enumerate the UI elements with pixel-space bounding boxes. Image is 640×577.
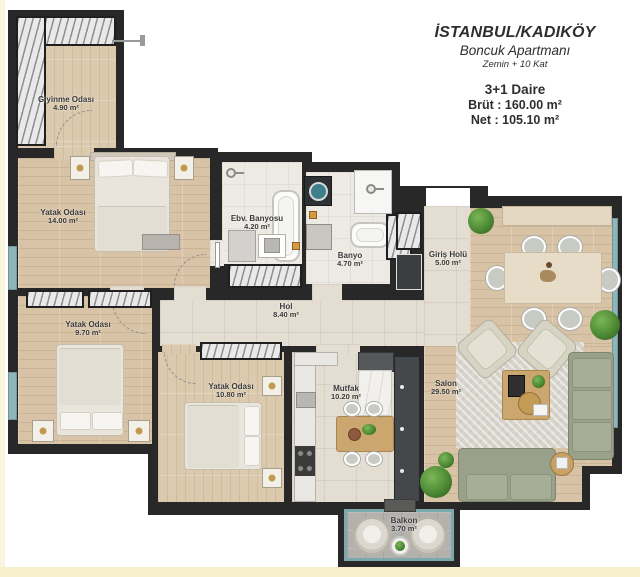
unit-type: 3+1 Daire (404, 82, 626, 97)
sofa-cushion (466, 474, 508, 500)
plant-icon (438, 452, 454, 468)
chair (366, 452, 382, 466)
plant-icon (468, 208, 494, 234)
cabinet-handle-icon (400, 427, 404, 431)
room-area: 10.20 m² (331, 393, 361, 402)
blanket (187, 405, 239, 468)
table-plant-icon (532, 375, 545, 388)
sofa-cushion (510, 474, 552, 500)
title-block: İSTANBUL/KADIKÖY Boncuk Apartmanı Zemin … (404, 24, 626, 127)
door-opening-bath (312, 284, 342, 302)
fridge (358, 352, 394, 372)
entry-cabinet (396, 254, 422, 290)
floor-entry-hall (424, 206, 470, 346)
towel-warmer-icon (309, 211, 317, 219)
dresser (142, 234, 180, 250)
window-master (8, 246, 17, 290)
armchair-cushion (524, 326, 569, 371)
room-area: 9.70 m² (65, 329, 110, 338)
room-area: 5.00 m² (429, 259, 467, 268)
lamp-icon (40, 428, 47, 435)
wardrobe (16, 16, 46, 146)
nightstand (32, 420, 54, 442)
sofa-cushion (572, 422, 612, 452)
book (533, 404, 548, 416)
nightstand (70, 156, 90, 180)
round-chair (352, 516, 392, 556)
sideboard (502, 206, 612, 226)
stove (295, 446, 315, 476)
bathtub-basin (356, 228, 384, 242)
cabinet-handle-icon (400, 385, 404, 389)
armchair-cushion (464, 326, 509, 371)
window-bedroom2 (8, 372, 17, 420)
kitchen-counter (294, 352, 338, 366)
room-area: 14.00 m² (40, 217, 85, 226)
lamp-icon (269, 383, 276, 390)
building-floors: Zemin + 10 Kat (404, 59, 626, 70)
wall-anchor-icon (112, 40, 142, 42)
shower-arm-icon (235, 172, 244, 174)
wall-anchor-icon (140, 35, 145, 46)
pillow (133, 159, 169, 178)
entry-door-opening (426, 188, 470, 208)
project-location: İSTANBUL/KADIKÖY (404, 24, 626, 42)
door-leaf-ensuite (215, 242, 220, 268)
towel-warmer-icon (292, 242, 300, 250)
pillow (92, 412, 123, 430)
blanket (59, 348, 121, 405)
room-label-salon: Salon 29.50 m² (431, 379, 461, 397)
room-area: 4.90 m² (38, 104, 94, 113)
plant-icon (420, 466, 452, 498)
tall-cabinets (394, 356, 420, 502)
page-edge-bottom (0, 567, 640, 577)
side-table-decor (556, 457, 568, 469)
room-label-yatak-2: Yatak Odası 9.70 m² (65, 320, 110, 338)
floor-plan-page: Giyinme Odası 4.90 m² Yatak Odası 14.00 … (0, 0, 640, 577)
plant-icon (590, 310, 620, 340)
nightstand (262, 468, 282, 488)
washer-door-icon (309, 182, 328, 201)
shower-arm-icon (375, 188, 384, 190)
sofa-cushion (572, 358, 612, 388)
net-area: Net : 105.10 m² (404, 113, 626, 127)
table-decor (540, 270, 556, 282)
room-area: 4.20 m² (231, 223, 283, 232)
wardrobe (26, 290, 84, 308)
room-label-yatak-ebeveyn: Yatak Odası 14.00 m² (40, 208, 85, 226)
bathtub (350, 222, 390, 248)
nightstand (262, 376, 282, 396)
room-label-ebv-banyosu: Ebv. Banyosu 4.20 m² (231, 214, 283, 232)
kitchen-sink (296, 392, 316, 408)
shower-tray (228, 230, 256, 262)
table-plant-icon (362, 424, 376, 435)
room-label-yatak-3: Yatak Odası 10.80 m² (208, 382, 253, 400)
cabinet-handle-icon (400, 469, 404, 473)
pillow (244, 406, 260, 436)
lamp-icon (136, 428, 143, 435)
room-label-hol: Hol 8.40 m² (273, 302, 299, 320)
room-area: 3.70 m² (391, 525, 418, 534)
sink (306, 224, 332, 250)
building-name: Boncuk Apartmanı (404, 43, 626, 58)
room-label-giyinme: Giyinme Odası 4.90 m² (38, 95, 94, 113)
balcony-threshold (384, 499, 416, 512)
wardrobe (228, 264, 302, 288)
room-label-balkon: Balkon 3.70 m² (391, 516, 418, 534)
pillow (244, 436, 260, 466)
shoe-cabinet (396, 212, 422, 250)
chair (344, 452, 360, 466)
table-plant-icon (395, 541, 405, 551)
wardrobe (44, 16, 116, 46)
gross-area: Brüt : 160.00 m² (404, 98, 626, 112)
lamp-icon (269, 475, 276, 482)
room-label-banyo: Banyo 4.70 m² (337, 251, 363, 269)
kitchen-counter (294, 352, 316, 502)
lamp-icon (77, 165, 84, 172)
sofa-cushion (572, 390, 612, 420)
room-label-giris-holu: Giriş Holü 5.00 m² (429, 250, 467, 268)
page-edge-left (0, 0, 5, 577)
wardrobe (88, 290, 152, 308)
room-area: 8.40 m² (273, 311, 299, 320)
door-opening-master (174, 286, 206, 302)
dining-chair (558, 308, 582, 330)
wardrobe (200, 342, 282, 360)
room-label-mutfak: Mutfak 10.20 m² (331, 384, 361, 402)
lamp-icon (181, 165, 188, 172)
nightstand (128, 420, 150, 442)
nightstand (174, 156, 194, 180)
table-decor (546, 262, 552, 268)
bowl (348, 428, 361, 441)
pillow (60, 412, 91, 430)
chair (344, 402, 360, 416)
pillow (98, 159, 134, 178)
room-area: 10.80 m² (208, 391, 253, 400)
chair (366, 402, 382, 416)
room-area: 4.70 m² (337, 260, 363, 269)
sink-basin (264, 238, 280, 253)
room-area: 29.50 m² (431, 388, 461, 397)
